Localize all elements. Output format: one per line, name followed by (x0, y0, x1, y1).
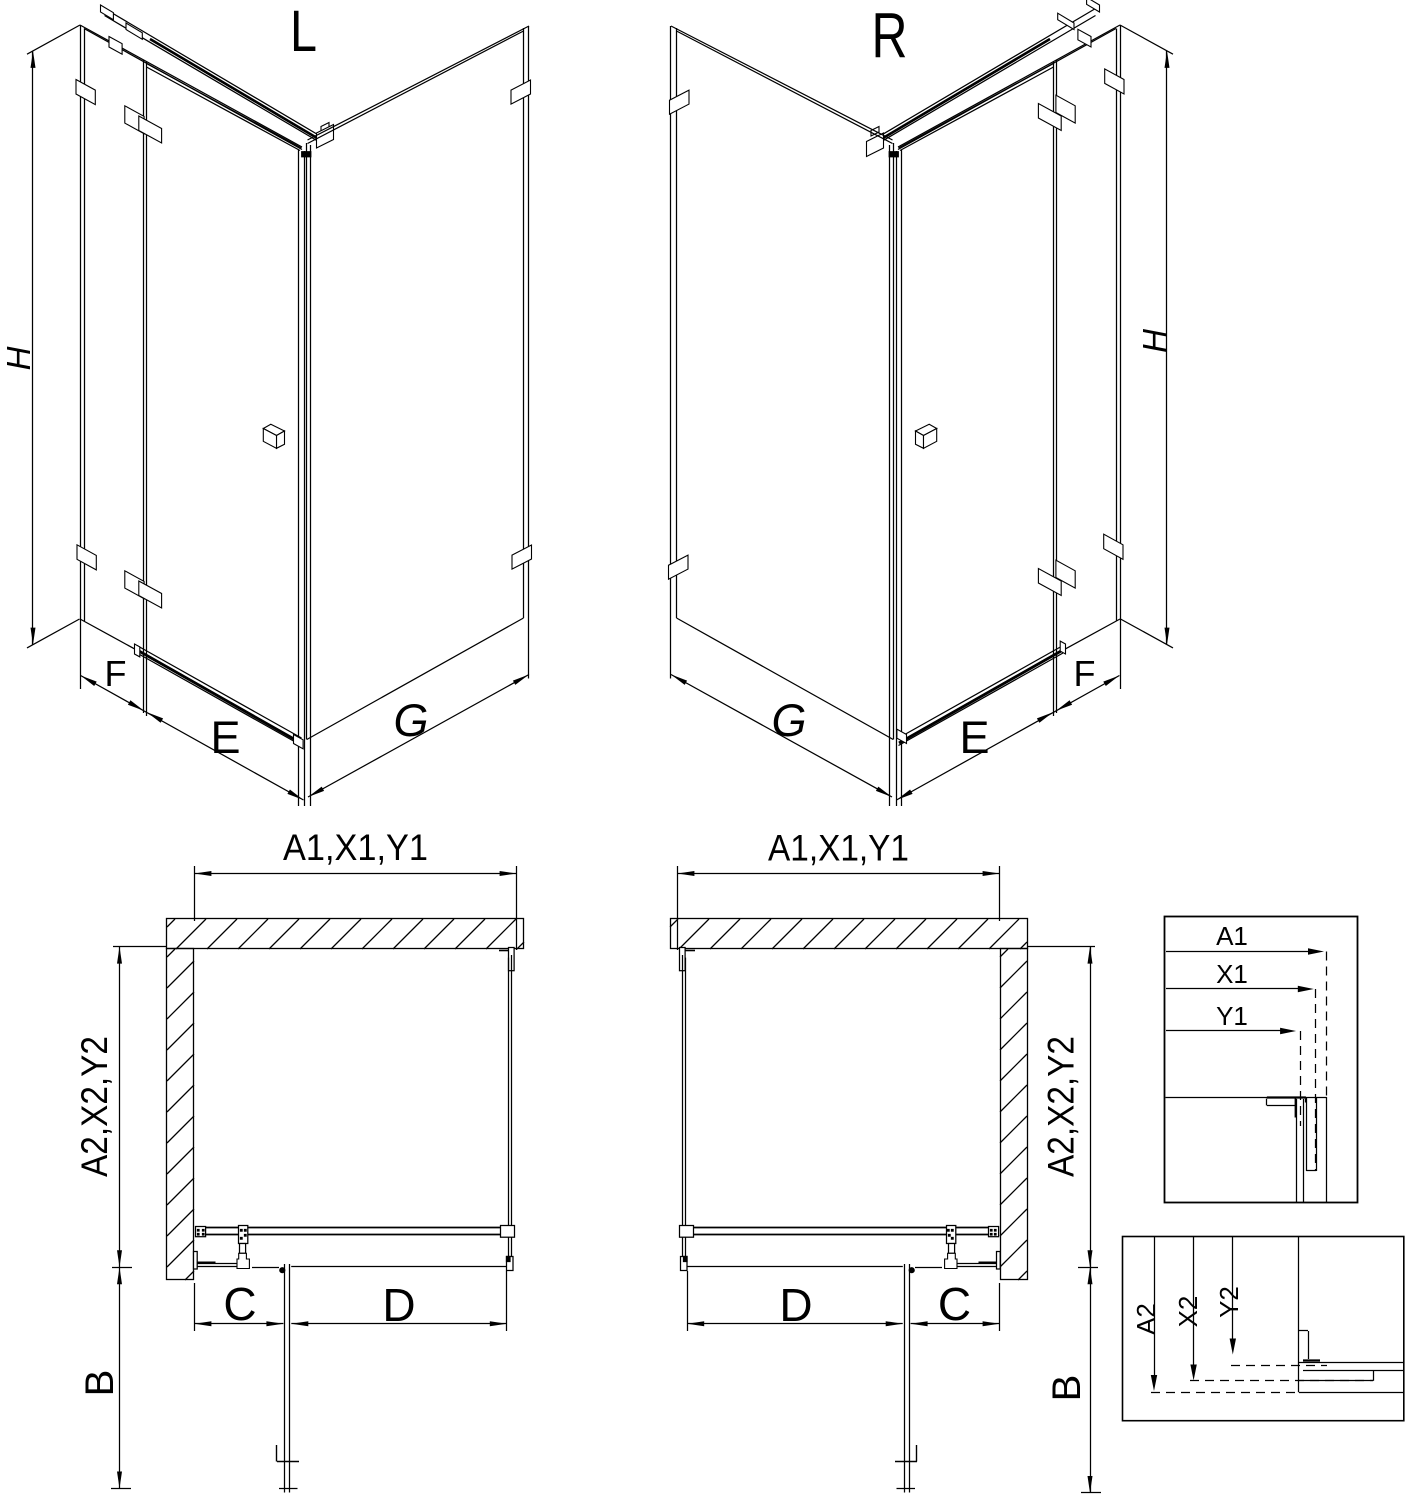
svg-text:X1: X1 (1216, 959, 1248, 989)
svg-text:A1: A1 (1216, 921, 1248, 951)
svg-text:H: H (1136, 329, 1173, 353)
svg-text:A2,X2,Y2: A2,X2,Y2 (1041, 1036, 1082, 1177)
svg-text:D: D (779, 1279, 812, 1331)
svg-text:B: B (1045, 1375, 1089, 1402)
svg-text:G: G (393, 695, 428, 746)
svg-text:A2,X2,Y2: A2,X2,Y2 (74, 1036, 115, 1177)
svg-text:H: H (0, 346, 37, 370)
svg-text:E: E (959, 712, 989, 763)
svg-text:D: D (382, 1279, 415, 1331)
svg-text:Y2: Y2 (1214, 1286, 1244, 1318)
svg-text:Y1: Y1 (1216, 1001, 1248, 1031)
svg-text:G: G (771, 695, 806, 746)
svg-text:E: E (210, 712, 240, 763)
svg-text:B: B (78, 1370, 122, 1397)
svg-text:C: C (223, 1278, 256, 1330)
svg-text:A1,X1,Y1: A1,X1,Y1 (283, 827, 428, 868)
svg-text:F: F (105, 653, 127, 694)
svg-text:A2: A2 (1131, 1303, 1161, 1335)
svg-text:C: C (938, 1278, 971, 1330)
svg-text:A1,X1,Y1: A1,X1,Y1 (768, 828, 909, 869)
svg-text:F: F (1074, 653, 1096, 694)
svg-text:X2: X2 (1173, 1296, 1203, 1328)
svg-text:L: L (290, 0, 317, 64)
svg-text:R: R (872, 0, 908, 72)
